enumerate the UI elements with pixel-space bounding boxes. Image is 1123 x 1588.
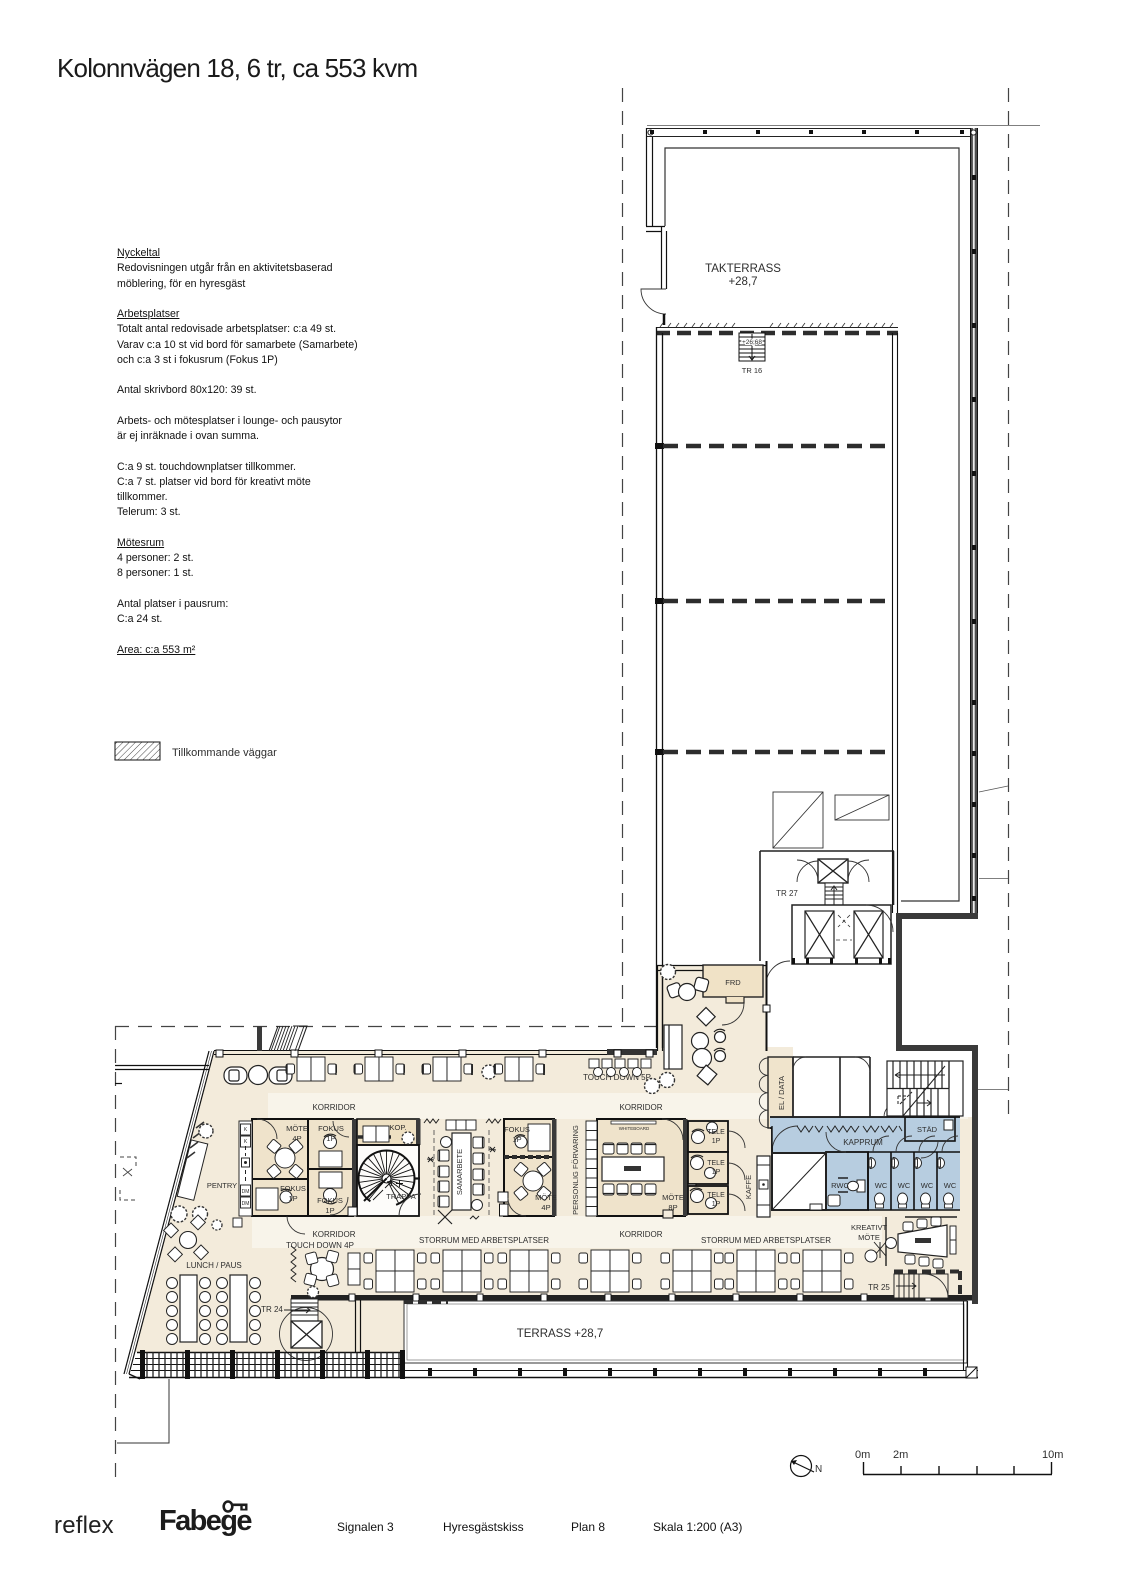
svg-text:TR 24: TR 24 [261, 1305, 283, 1314]
svg-text:1P: 1P [288, 1194, 297, 1203]
svg-text:TOUCH DOWN 4P: TOUCH DOWN 4P [286, 1241, 354, 1250]
svg-text:MÖTE: MÖTE [858, 1233, 880, 1242]
svg-text:+28,7: +28,7 [728, 276, 757, 288]
svg-text:KORRIDOR: KORRIDOR [619, 1230, 662, 1239]
svg-text:RWC: RWC [831, 1181, 849, 1190]
svg-text:1P: 1P [712, 1138, 721, 1145]
svg-text:STORRUM MED ARBETSPLATSER: STORRUM MED ARBETSPLATSER [701, 1236, 831, 1245]
svg-text:FRD: FRD [725, 978, 741, 987]
svg-text:WC: WC [898, 1181, 911, 1190]
svg-text:1P: 1P [712, 1169, 721, 1176]
svg-text:MÖTE: MÖTE [535, 1193, 557, 1202]
svg-text:1P: 1P [712, 1201, 721, 1208]
svg-text:WHITEBOARD: WHITEBOARD [619, 1126, 650, 1131]
svg-text:FOKUS: FOKUS [317, 1196, 343, 1205]
svg-text:0m: 0m [855, 1449, 870, 1461]
svg-text:MÖTE: MÖTE [286, 1124, 308, 1133]
svg-text:TR 16: TR 16 [742, 366, 762, 375]
svg-text:1P: 1P [326, 1134, 335, 1143]
svg-text:KORRIDOR: KORRIDOR [312, 1103, 355, 1112]
svg-text:1P: 1P [512, 1135, 521, 1144]
svg-text:STÄD: STÄD [917, 1125, 938, 1134]
svg-text:TRAPPA: TRAPPA [386, 1192, 415, 1201]
svg-text:TELE: TELE [707, 1160, 725, 1167]
svg-text:WC: WC [875, 1181, 888, 1190]
svg-text:MÖTE: MÖTE [662, 1193, 684, 1202]
svg-text:PENTRY: PENTRY [207, 1181, 237, 1190]
svg-text:+26,68: +26,68 [742, 339, 762, 346]
svg-text:WC: WC [944, 1181, 957, 1190]
svg-text:LUNCH / PAUS: LUNCH / PAUS [186, 1261, 241, 1270]
svg-text:KOP.: KOP. [390, 1123, 407, 1132]
svg-text:DM: DM [242, 1201, 250, 1207]
svg-text:2m: 2m [893, 1449, 908, 1461]
svg-text:FOKUS: FOKUS [504, 1125, 530, 1134]
svg-text:TELE: TELE [707, 1129, 725, 1136]
svg-text:KAPPRUM: KAPPRUM [843, 1138, 883, 1147]
svg-text:TERRASS +28,7: TERRASS +28,7 [517, 1328, 604, 1340]
svg-text:DM: DM [242, 1189, 250, 1195]
svg-text:PERSONLIG FÖRVARING: PERSONLIG FÖRVARING [571, 1125, 580, 1215]
svg-text:1P: 1P [325, 1206, 334, 1215]
svg-text:FOKUS: FOKUS [280, 1184, 306, 1193]
svg-text:Tillkommande väggar: Tillkommande väggar [172, 747, 277, 759]
svg-text:EL / DATA: EL / DATA [777, 1076, 786, 1110]
svg-text:SAMARBETE: SAMARBETE [455, 1149, 464, 1195]
svg-text:4P: 4P [292, 1134, 301, 1143]
svg-text:TAKTERRASS: TAKTERRASS [705, 263, 781, 275]
svg-text:4P: 4P [541, 1203, 550, 1212]
svg-text:N: N [815, 1464, 822, 1475]
svg-text:STORRUM MED ARBETSPLATSER: STORRUM MED ARBETSPLATSER [419, 1236, 549, 1245]
svg-text:TR 27: TR 27 [776, 889, 798, 898]
svg-text:KORRIDOR: KORRIDOR [619, 1103, 662, 1112]
svg-text:KORRIDOR: KORRIDOR [312, 1230, 355, 1239]
svg-text:TELE: TELE [707, 1192, 725, 1199]
svg-text:10m: 10m [1042, 1449, 1063, 1461]
svg-text:FOKUS: FOKUS [318, 1124, 344, 1133]
svg-text:TR 25: TR 25 [868, 1283, 890, 1292]
svg-text:KREATIVT: KREATIVT [851, 1223, 888, 1232]
svg-text:WC: WC [921, 1181, 934, 1190]
